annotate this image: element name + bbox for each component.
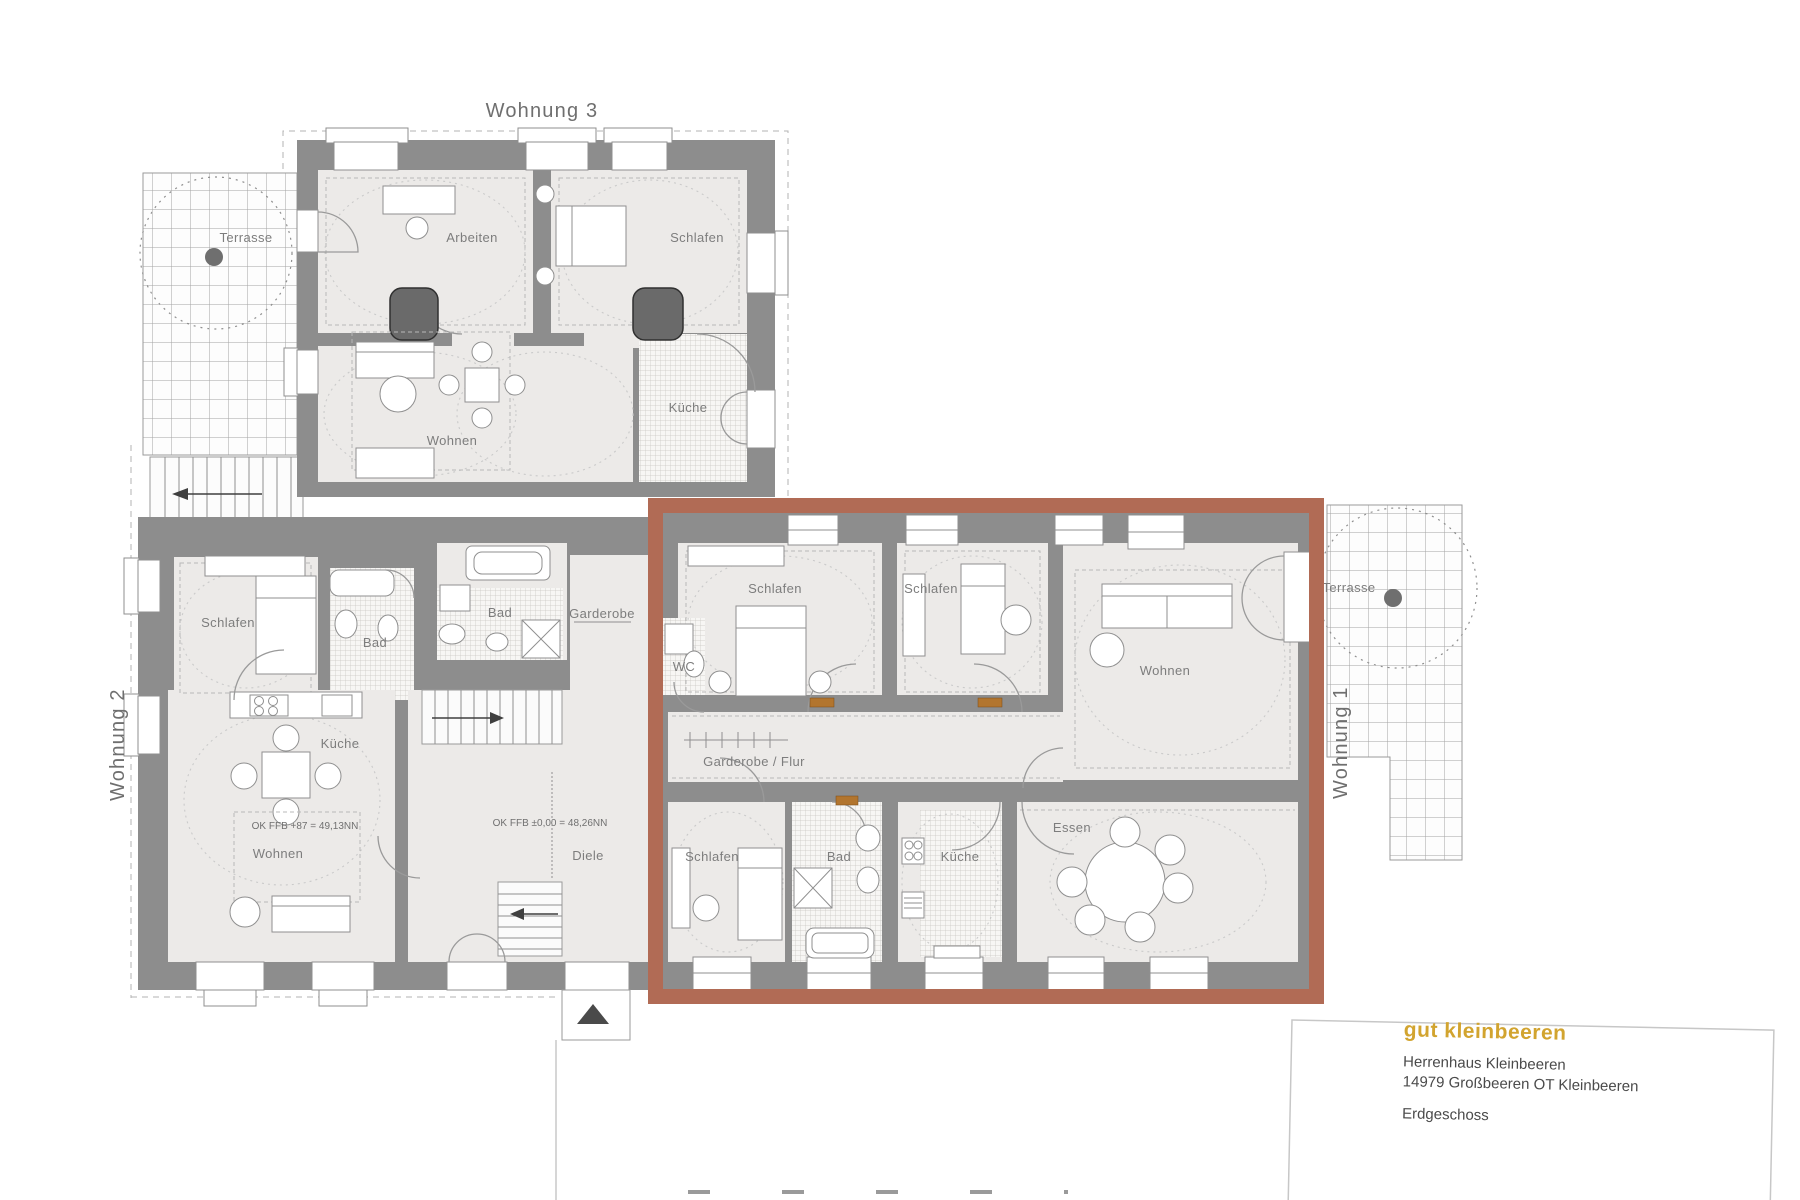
level-note-hall: OK FFB ±0,00 = 48,26NN xyxy=(493,818,608,829)
room-label-wohnen-w3: Wohnen xyxy=(427,433,478,448)
room-label-bad-w1: Bad xyxy=(827,849,851,864)
door-threshold xyxy=(810,698,834,707)
sink xyxy=(856,825,880,851)
sink xyxy=(486,633,508,651)
fridge xyxy=(902,892,924,918)
bed xyxy=(256,576,316,674)
corridor-garderobe-flur xyxy=(668,712,1063,782)
side-table xyxy=(1090,633,1124,667)
floor-plan-svg: Terrasse xyxy=(0,0,1800,1200)
table xyxy=(465,368,499,402)
bed xyxy=(961,564,1005,654)
floorplan-page: Terrasse xyxy=(0,0,1800,1200)
room-label-kueche-w1: Küche xyxy=(941,849,980,864)
room-label-schlafen2-w1: Schlafen xyxy=(904,581,958,596)
apartment2-building xyxy=(124,517,660,1006)
armchair xyxy=(1001,605,1031,635)
sofa xyxy=(272,896,350,932)
level-note-w2: OK FFB +87 = 49,13NN xyxy=(252,821,359,832)
terrace-west-label: Terrasse xyxy=(219,230,272,245)
room-label-wohnen-w2: Wohnen xyxy=(253,846,304,861)
room-label-schlafen-w2: Schlafen xyxy=(201,615,255,630)
sink xyxy=(439,624,465,644)
side-table xyxy=(230,897,260,927)
tree-trunk-dot xyxy=(1384,589,1402,607)
title-block-building: Herrenhaus Kleinbeeren xyxy=(1403,1053,1566,1073)
room-label-diele: Diele xyxy=(572,848,604,863)
side-table xyxy=(380,376,416,412)
desk-chair xyxy=(406,217,428,239)
bed xyxy=(736,606,806,696)
apartment2-title: Wohnung 2 xyxy=(107,688,129,801)
apartment1-title: Wohnung 1 xyxy=(1330,686,1352,799)
wardrobe xyxy=(205,556,305,576)
washing-machine xyxy=(440,585,470,611)
apartment3-title: Wohnung 3 xyxy=(486,100,599,122)
terrace-east-label: Terrasse xyxy=(1322,580,1375,595)
room-label-arbeiten: Arbeiten xyxy=(446,230,498,245)
room-label-schlafen3-w1: Schlafen xyxy=(685,849,739,864)
room-label-kueche-w2: Küche xyxy=(321,736,360,751)
terrace-west xyxy=(140,173,303,537)
apartment3-building xyxy=(284,128,788,497)
terrace-east: Terrasse xyxy=(1317,505,1477,860)
room-label-schlafen1-w1: Schlafen xyxy=(748,581,802,596)
room-label-bad1-w2: Bad xyxy=(363,635,387,650)
chair xyxy=(693,895,719,921)
hall-garderobe xyxy=(570,555,648,700)
door-threshold xyxy=(836,796,858,805)
tree-trunk-dot xyxy=(205,248,223,266)
room-label-flur-w1: Garderobe / Flur xyxy=(703,754,805,769)
wardrobe xyxy=(688,546,784,566)
bed xyxy=(738,848,782,940)
title-block: gut kleinbeeren Herrenhaus Kleinbeeren 1… xyxy=(1288,1016,1774,1200)
brand-logo-text: gut kleinbeeren xyxy=(1404,1018,1567,1044)
room-label-kueche-w3: Küche xyxy=(669,400,708,415)
room-label-wohnen-w1: Wohnen xyxy=(1140,663,1191,678)
toilet xyxy=(857,867,879,893)
kitchen-counter xyxy=(934,946,980,958)
room-label-schlafen-w3: Schlafen xyxy=(670,230,724,245)
table xyxy=(262,752,310,798)
room-label-garderobe-w2: Garderobe xyxy=(569,606,635,621)
wc-sink-cabinet xyxy=(665,624,693,654)
door-threshold xyxy=(978,698,1002,707)
kitchen-sink xyxy=(322,695,352,716)
toilet xyxy=(335,610,357,638)
room-label-wc-w1: WC xyxy=(673,659,695,674)
bathtub xyxy=(330,570,394,596)
title-block-floor: Erdgeschoss xyxy=(1402,1105,1489,1124)
entrance-porch xyxy=(562,990,630,1040)
room-label-bad2-w2: Bad xyxy=(488,605,512,620)
chimney-block xyxy=(633,288,683,340)
room-label-essen-w1: Essen xyxy=(1053,820,1091,835)
